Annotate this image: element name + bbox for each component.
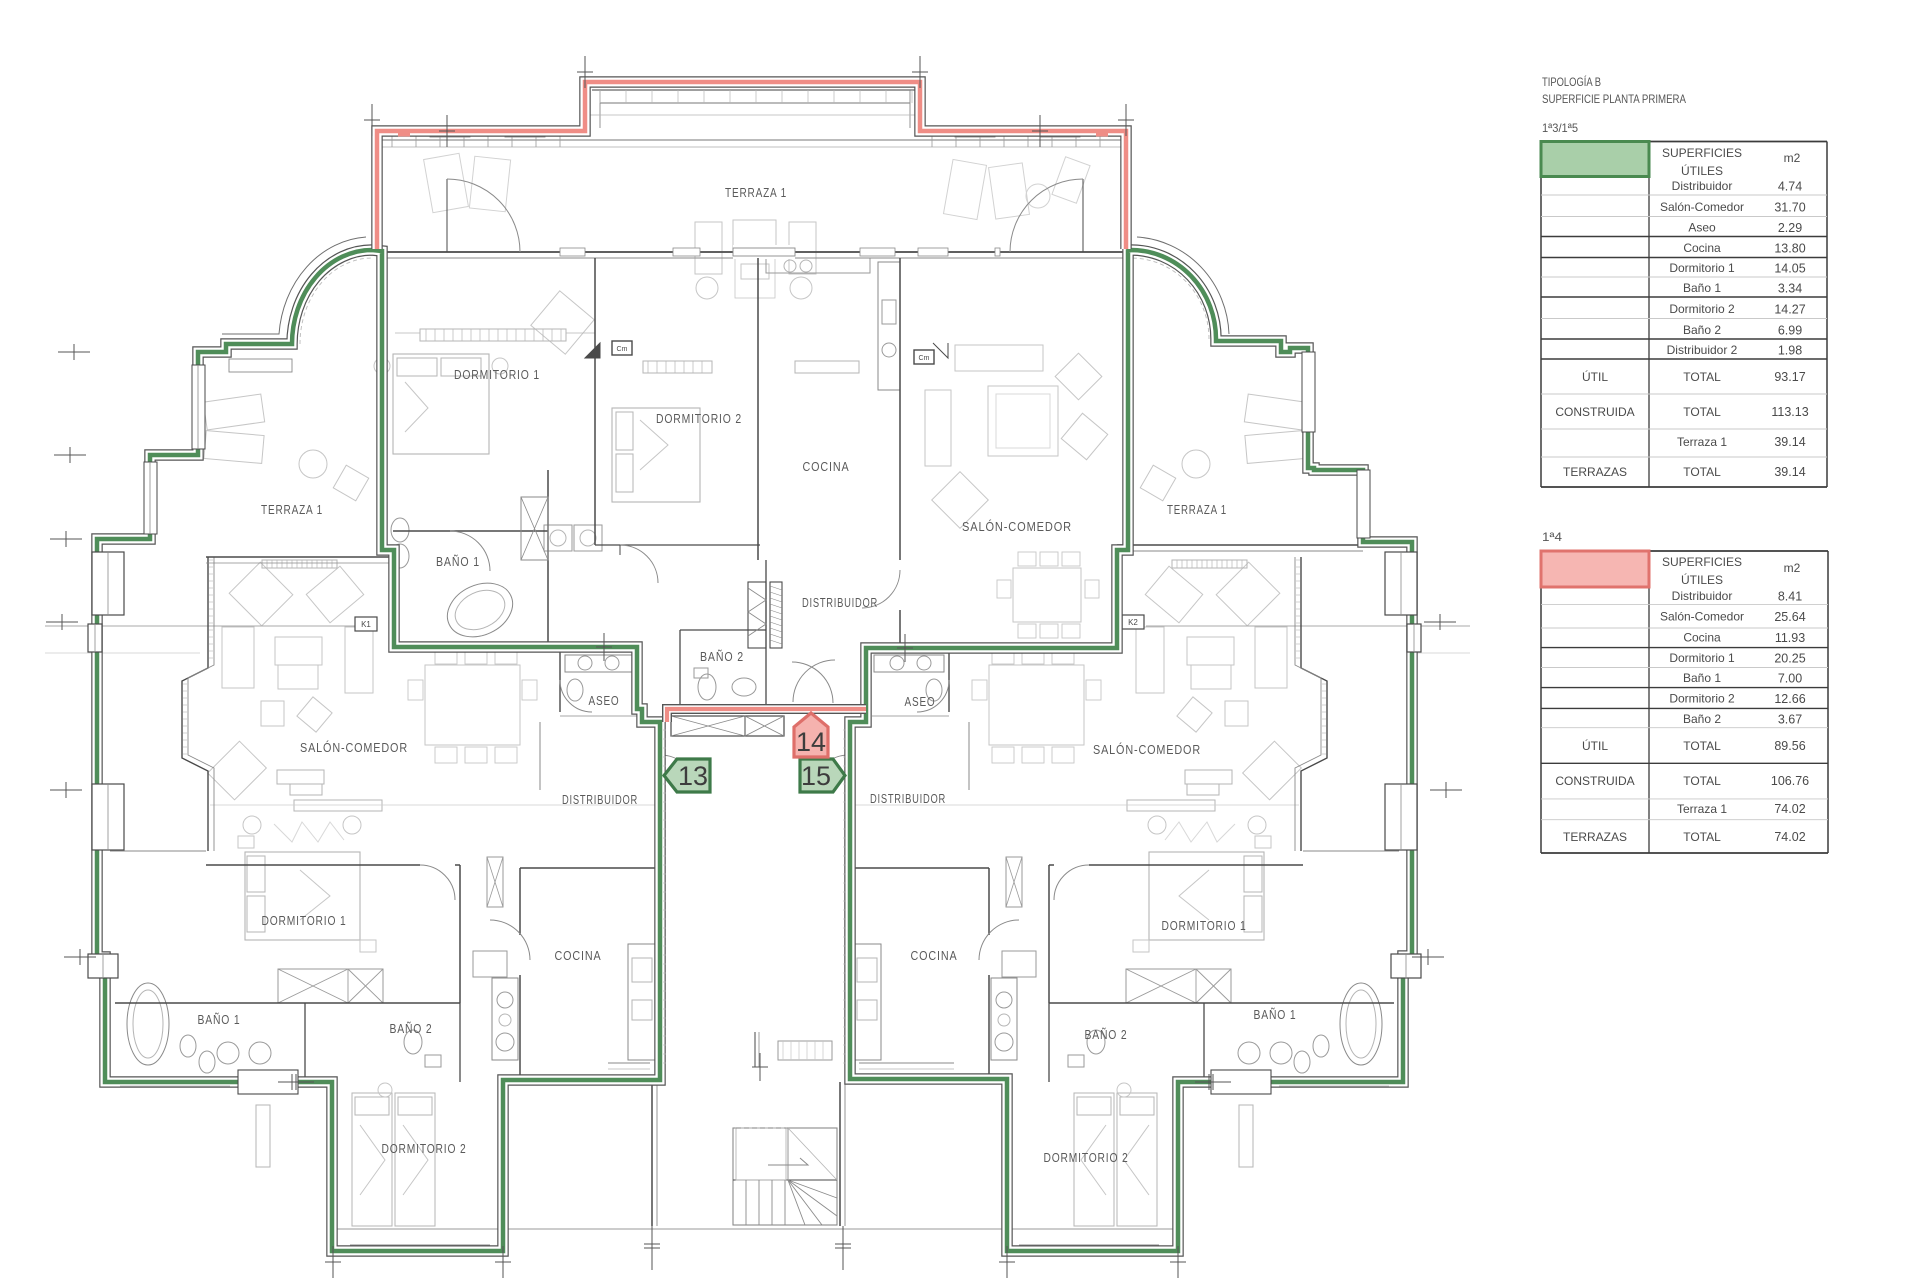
svg-text:m2: m2 bbox=[1784, 561, 1801, 575]
svg-text:BAÑO 1: BAÑO 1 bbox=[198, 1013, 241, 1027]
svg-text:ÚTILES: ÚTILES bbox=[1681, 572, 1723, 587]
svg-text:93.17: 93.17 bbox=[1774, 370, 1805, 384]
svg-text:SUPERFICIES: SUPERFICIES bbox=[1662, 146, 1742, 160]
svg-text:31.70: 31.70 bbox=[1774, 201, 1805, 215]
svg-text:25.64: 25.64 bbox=[1774, 610, 1805, 624]
svg-text:1ª3/1ª5: 1ª3/1ª5 bbox=[1542, 121, 1578, 135]
svg-text:DORMITORIO 2: DORMITORIO 2 bbox=[1044, 1151, 1129, 1165]
svg-text:m2: m2 bbox=[1784, 151, 1801, 165]
svg-text:Terraza 1: Terraza 1 bbox=[1677, 435, 1727, 449]
svg-text:1.98: 1.98 bbox=[1778, 344, 1802, 358]
svg-text:DORMITORIO 1: DORMITORIO 1 bbox=[454, 368, 540, 382]
svg-text:6.99: 6.99 bbox=[1778, 324, 1802, 338]
svg-text:SUPERFICIES: SUPERFICIES bbox=[1662, 555, 1742, 569]
svg-text:TOTAL: TOTAL bbox=[1683, 739, 1721, 753]
svg-text:BAÑO 2: BAÑO 2 bbox=[1085, 1028, 1128, 1042]
svg-text:Aseo: Aseo bbox=[1688, 221, 1716, 235]
svg-text:ÚTIL: ÚTIL bbox=[1582, 738, 1608, 753]
svg-text:4.74: 4.74 bbox=[1778, 180, 1802, 194]
svg-text:COCINA: COCINA bbox=[911, 949, 958, 963]
svg-text:Baño 2: Baño 2 bbox=[1683, 712, 1721, 726]
svg-text:Cocina: Cocina bbox=[1683, 631, 1721, 645]
svg-text:89.56: 89.56 bbox=[1774, 739, 1805, 753]
svg-text:113.13: 113.13 bbox=[1771, 405, 1808, 419]
svg-text:SALÓN-COMEDOR: SALÓN-COMEDOR bbox=[962, 519, 1072, 534]
svg-text:3.67: 3.67 bbox=[1778, 713, 1802, 727]
svg-text:TERRAZAS: TERRAZAS bbox=[1563, 830, 1627, 844]
svg-text:SALÓN-COMEDOR: SALÓN-COMEDOR bbox=[1093, 742, 1201, 757]
svg-text:74.02: 74.02 bbox=[1774, 830, 1805, 844]
svg-text:Baño 2: Baño 2 bbox=[1683, 323, 1721, 337]
svg-text:DORMITORIO 1: DORMITORIO 1 bbox=[1162, 919, 1247, 933]
svg-text:DISTRIBUIDOR: DISTRIBUIDOR bbox=[562, 793, 638, 807]
svg-text:15: 15 bbox=[801, 761, 831, 791]
svg-text:BAÑO 1: BAÑO 1 bbox=[436, 555, 480, 569]
svg-text:TOTAL: TOTAL bbox=[1683, 830, 1721, 844]
svg-text:Distribuidor 2: Distribuidor 2 bbox=[1667, 343, 1738, 357]
svg-text:COCINA: COCINA bbox=[803, 460, 850, 474]
svg-text:DISTRIBUIDOR: DISTRIBUIDOR bbox=[870, 792, 946, 806]
svg-text:Baño 1: Baño 1 bbox=[1683, 281, 1721, 295]
svg-text:TOTAL: TOTAL bbox=[1683, 465, 1721, 479]
svg-text:CONSTRUIDA: CONSTRUIDA bbox=[1555, 405, 1634, 419]
svg-text:SALÓN-COMEDOR: SALÓN-COMEDOR bbox=[300, 740, 408, 755]
svg-text:TOTAL: TOTAL bbox=[1683, 774, 1721, 788]
svg-text:7.00: 7.00 bbox=[1778, 672, 1802, 686]
svg-text:Salón-Comedor: Salón-Comedor bbox=[1660, 200, 1744, 214]
svg-text:BAÑO 2: BAÑO 2 bbox=[700, 650, 744, 664]
svg-text:TERRAZAS: TERRAZAS bbox=[1563, 465, 1627, 479]
svg-text:TIPOLOGÍA B: TIPOLOGÍA B bbox=[1542, 74, 1601, 89]
svg-text:13: 13 bbox=[678, 761, 708, 791]
svg-text:Cm: Cm bbox=[617, 346, 628, 353]
svg-text:13.80: 13.80 bbox=[1774, 242, 1805, 256]
svg-text:8.41: 8.41 bbox=[1778, 590, 1802, 604]
svg-text:Dormitorio 2: Dormitorio 2 bbox=[1669, 692, 1735, 706]
svg-text:Baño 1: Baño 1 bbox=[1683, 671, 1721, 685]
svg-text:106.76: 106.76 bbox=[1771, 774, 1809, 788]
svg-text:20.25: 20.25 bbox=[1774, 652, 1805, 666]
svg-text:TERRAZA 1: TERRAZA 1 bbox=[1167, 503, 1227, 517]
svg-text:Salón-Comedor: Salón-Comedor bbox=[1660, 610, 1744, 624]
svg-text:K1: K1 bbox=[361, 620, 371, 629]
svg-text:K2: K2 bbox=[1128, 618, 1138, 627]
svg-text:ASEO: ASEO bbox=[905, 695, 936, 709]
svg-text:12.66: 12.66 bbox=[1774, 692, 1805, 706]
svg-text:TOTAL: TOTAL bbox=[1683, 405, 1721, 419]
svg-text:TOTAL: TOTAL bbox=[1683, 370, 1721, 384]
svg-text:SUPERFICIE PLANTA PRIMERA: SUPERFICIE PLANTA PRIMERA bbox=[1542, 92, 1686, 106]
svg-text:39.14: 39.14 bbox=[1774, 465, 1805, 479]
svg-text:ÚTIL: ÚTIL bbox=[1582, 369, 1608, 384]
svg-text:BAÑO 2: BAÑO 2 bbox=[390, 1022, 433, 1036]
svg-text:74.02: 74.02 bbox=[1774, 802, 1805, 816]
svg-text:DORMITORIO 2: DORMITORIO 2 bbox=[382, 1142, 467, 1156]
svg-text:Cm: Cm bbox=[919, 355, 930, 362]
svg-text:2.29: 2.29 bbox=[1778, 221, 1802, 235]
svg-text:Cocina: Cocina bbox=[1683, 241, 1721, 255]
svg-text:39.14: 39.14 bbox=[1774, 435, 1805, 449]
svg-text:TERRAZA 1: TERRAZA 1 bbox=[261, 503, 323, 517]
svg-text:Distribuidor: Distribuidor bbox=[1672, 179, 1733, 193]
svg-text:COCINA: COCINA bbox=[555, 949, 602, 963]
svg-text:CONSTRUIDA: CONSTRUIDA bbox=[1555, 774, 1634, 788]
svg-text:TERRAZA 1: TERRAZA 1 bbox=[725, 186, 787, 200]
svg-text:BAÑO 1: BAÑO 1 bbox=[1254, 1008, 1297, 1022]
svg-text:14.05: 14.05 bbox=[1774, 262, 1805, 276]
svg-text:14: 14 bbox=[796, 727, 826, 757]
svg-text:ÚTILES: ÚTILES bbox=[1681, 163, 1723, 178]
svg-text:ASEO: ASEO bbox=[589, 694, 620, 708]
svg-text:Dormitorio 1: Dormitorio 1 bbox=[1669, 651, 1735, 665]
svg-text:3.34: 3.34 bbox=[1778, 282, 1802, 296]
svg-text:11.93: 11.93 bbox=[1775, 631, 1805, 645]
svg-text:Distribuidor: Distribuidor bbox=[1672, 589, 1733, 603]
svg-text:Dormitorio 1: Dormitorio 1 bbox=[1669, 261, 1735, 275]
svg-text:1ª4: 1ª4 bbox=[1542, 530, 1562, 544]
svg-text:14.27: 14.27 bbox=[1774, 303, 1805, 317]
svg-text:Terraza 1: Terraza 1 bbox=[1677, 802, 1727, 816]
svg-text:DORMITORIO 2: DORMITORIO 2 bbox=[656, 412, 742, 426]
svg-text:DISTRIBUIDOR: DISTRIBUIDOR bbox=[802, 596, 878, 610]
svg-text:DORMITORIO 1: DORMITORIO 1 bbox=[262, 914, 347, 928]
svg-text:Dormitorio 2: Dormitorio 2 bbox=[1669, 302, 1735, 316]
